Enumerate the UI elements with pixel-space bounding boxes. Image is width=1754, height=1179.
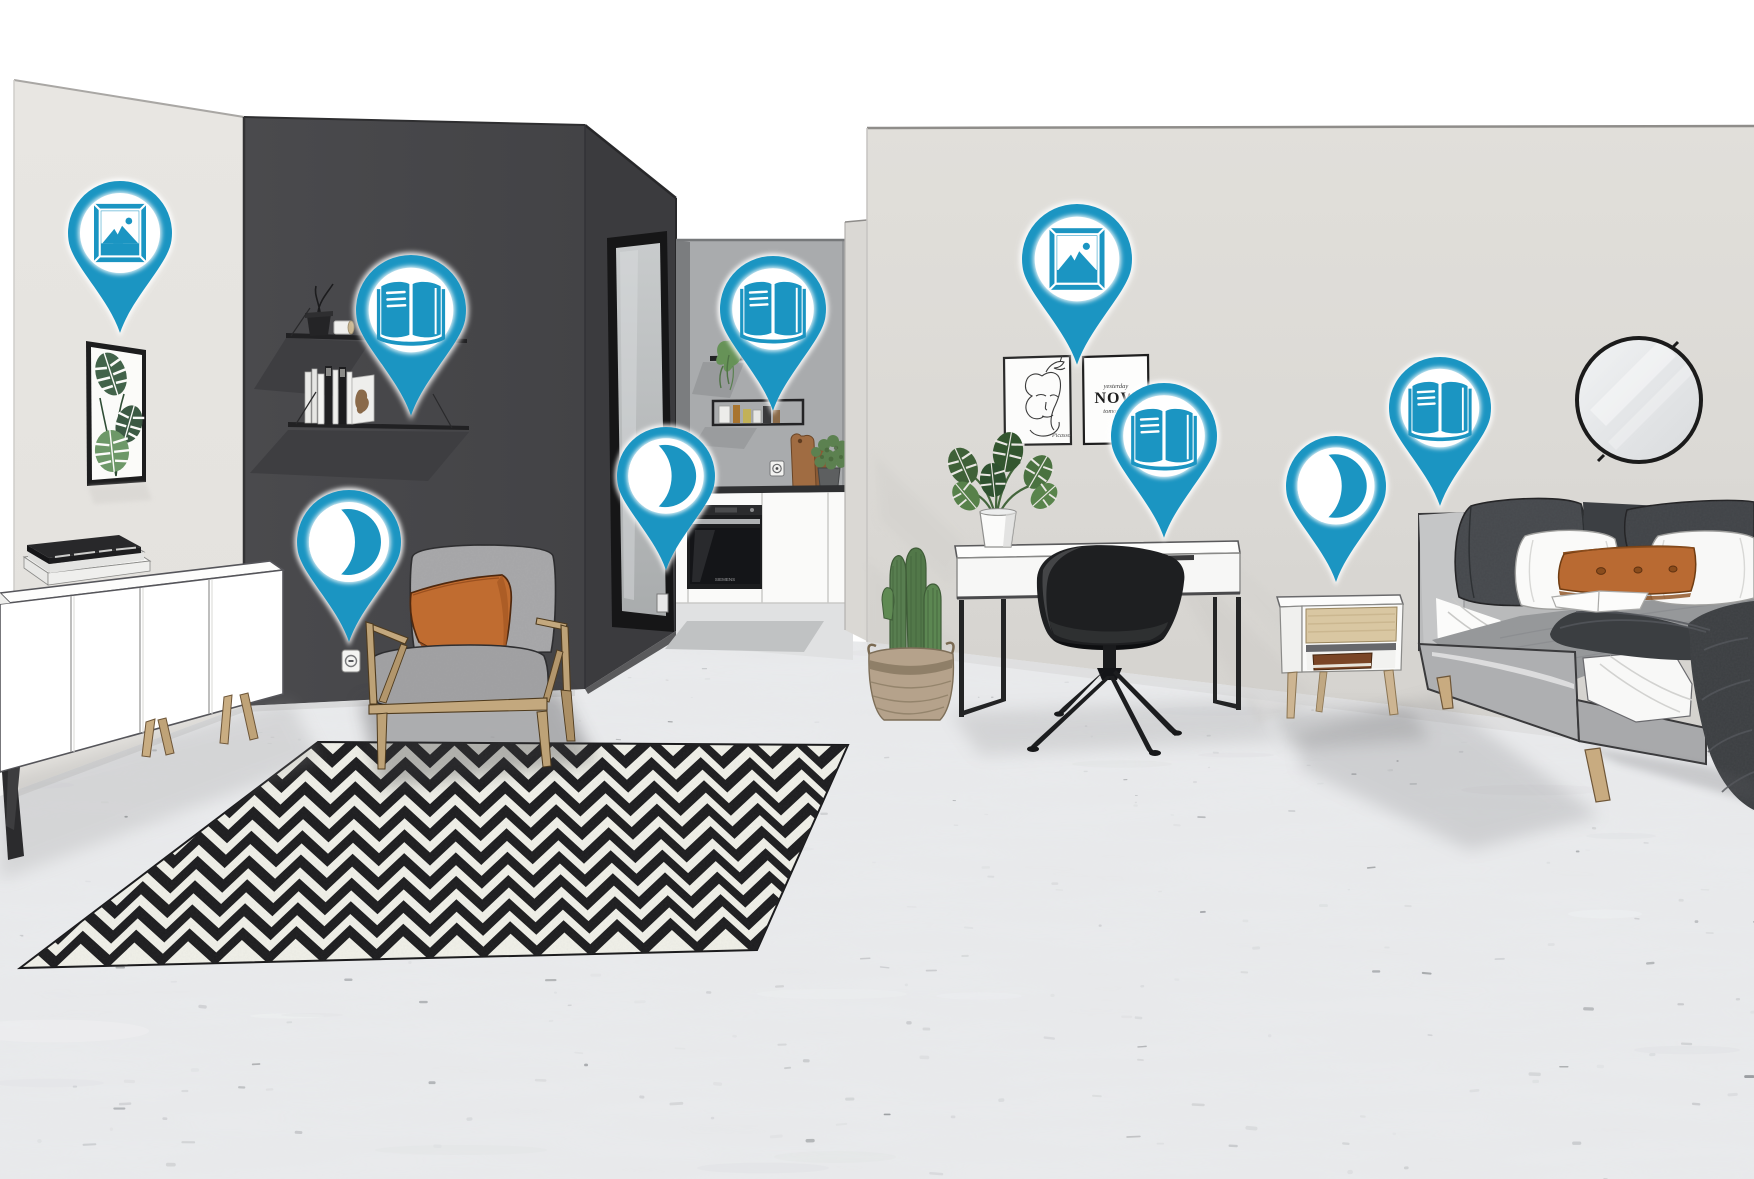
- svg-text:Picasso: Picasso: [1051, 433, 1071, 439]
- svg-text:yesterday: yesterday: [1103, 383, 1129, 390]
- svg-text:SIEMENS: SIEMENS: [715, 577, 735, 582]
